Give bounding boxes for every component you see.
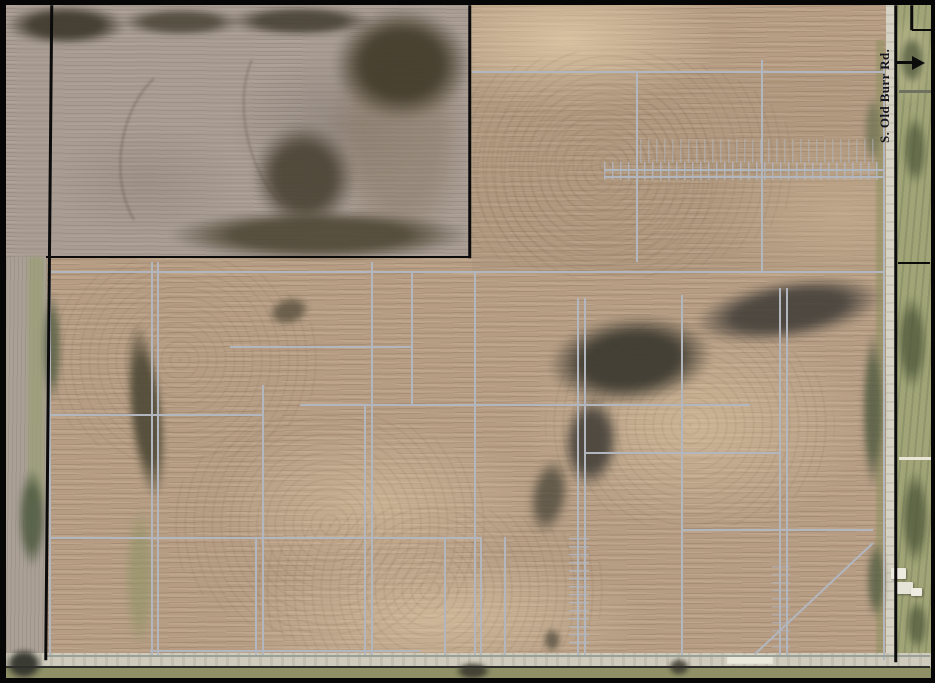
drain-tile-line <box>504 537 506 656</box>
drain-tile-line <box>444 537 446 656</box>
tree-canopy <box>906 600 928 650</box>
drain-tile-line <box>883 60 885 660</box>
drain-tile-line <box>682 529 873 531</box>
drain-tile-line <box>604 169 884 171</box>
tree-canopy <box>543 628 561 652</box>
drain-tile-line <box>681 295 683 656</box>
map-frame <box>0 0 6 683</box>
drain-tile-line <box>472 71 884 73</box>
map-frame <box>0 678 935 683</box>
plow-contour-texture <box>40 255 320 465</box>
drain-tile-line <box>779 288 781 656</box>
drain-tile-line <box>604 176 884 178</box>
parcel-boundary-line <box>895 5 898 662</box>
drain-tile-line <box>50 537 481 539</box>
road-name-label: S. Old Burr Rd. <box>877 9 892 143</box>
drain-tile-line <box>45 655 930 657</box>
drain-tile-line <box>480 537 482 656</box>
tree-canopy <box>333 8 471 120</box>
tree-canopy <box>42 292 62 402</box>
drain-tile-line <box>151 262 153 656</box>
parcel-boundary-line <box>46 256 470 259</box>
parcel-boundary-line <box>5 666 930 668</box>
parcel-boundary-line <box>911 5 914 30</box>
tree-canopy <box>18 468 46 568</box>
map-frame <box>0 0 935 5</box>
drain-tile-line <box>411 272 413 405</box>
drain-tile-line <box>474 272 476 656</box>
drain-tile-line <box>577 298 579 656</box>
tree-canopy <box>168 210 470 260</box>
parcel-boundary-line <box>898 262 930 264</box>
east-arrow-icon <box>912 56 925 70</box>
tile-lateral-ticks <box>569 538 589 650</box>
tree-canopy <box>5 648 43 680</box>
drain-tile-line <box>50 414 263 416</box>
building-roof <box>911 588 922 596</box>
tree-canopy <box>862 330 884 490</box>
drain-tile-line <box>364 405 366 656</box>
drain-tile-line <box>255 537 257 656</box>
drain-tile-line <box>50 271 884 273</box>
aerial-tile-map: S. Old Burr Rd. <box>0 0 935 683</box>
parcel-boundary-line <box>469 5 472 258</box>
tile-lateral-ticks <box>640 139 880 163</box>
map-frame <box>931 0 935 683</box>
drain-tile-line <box>584 298 586 656</box>
drain-tile-line <box>371 262 373 656</box>
parcel-boundary-line <box>912 29 933 32</box>
tree-canopy <box>901 470 929 565</box>
drain-tile-line <box>786 288 788 656</box>
drain-tile-line <box>761 60 763 273</box>
drain-tile-line <box>150 650 420 652</box>
tree-canopy <box>5 5 127 45</box>
drain-tile-line <box>636 72 638 262</box>
drain-tile-line <box>157 262 159 656</box>
drain-tile-line <box>585 452 780 454</box>
drain-tile-line <box>262 385 264 656</box>
drain-tile-line <box>230 346 412 348</box>
grass-strip-boundary <box>28 257 44 502</box>
drain-tile-line <box>899 457 933 460</box>
building-roof <box>891 568 906 579</box>
drain-tile-line <box>300 404 750 406</box>
tree-canopy <box>903 115 927 185</box>
tree-canopy <box>897 295 927 390</box>
drain-tile-line <box>899 90 933 93</box>
tree-canopy <box>120 8 242 36</box>
